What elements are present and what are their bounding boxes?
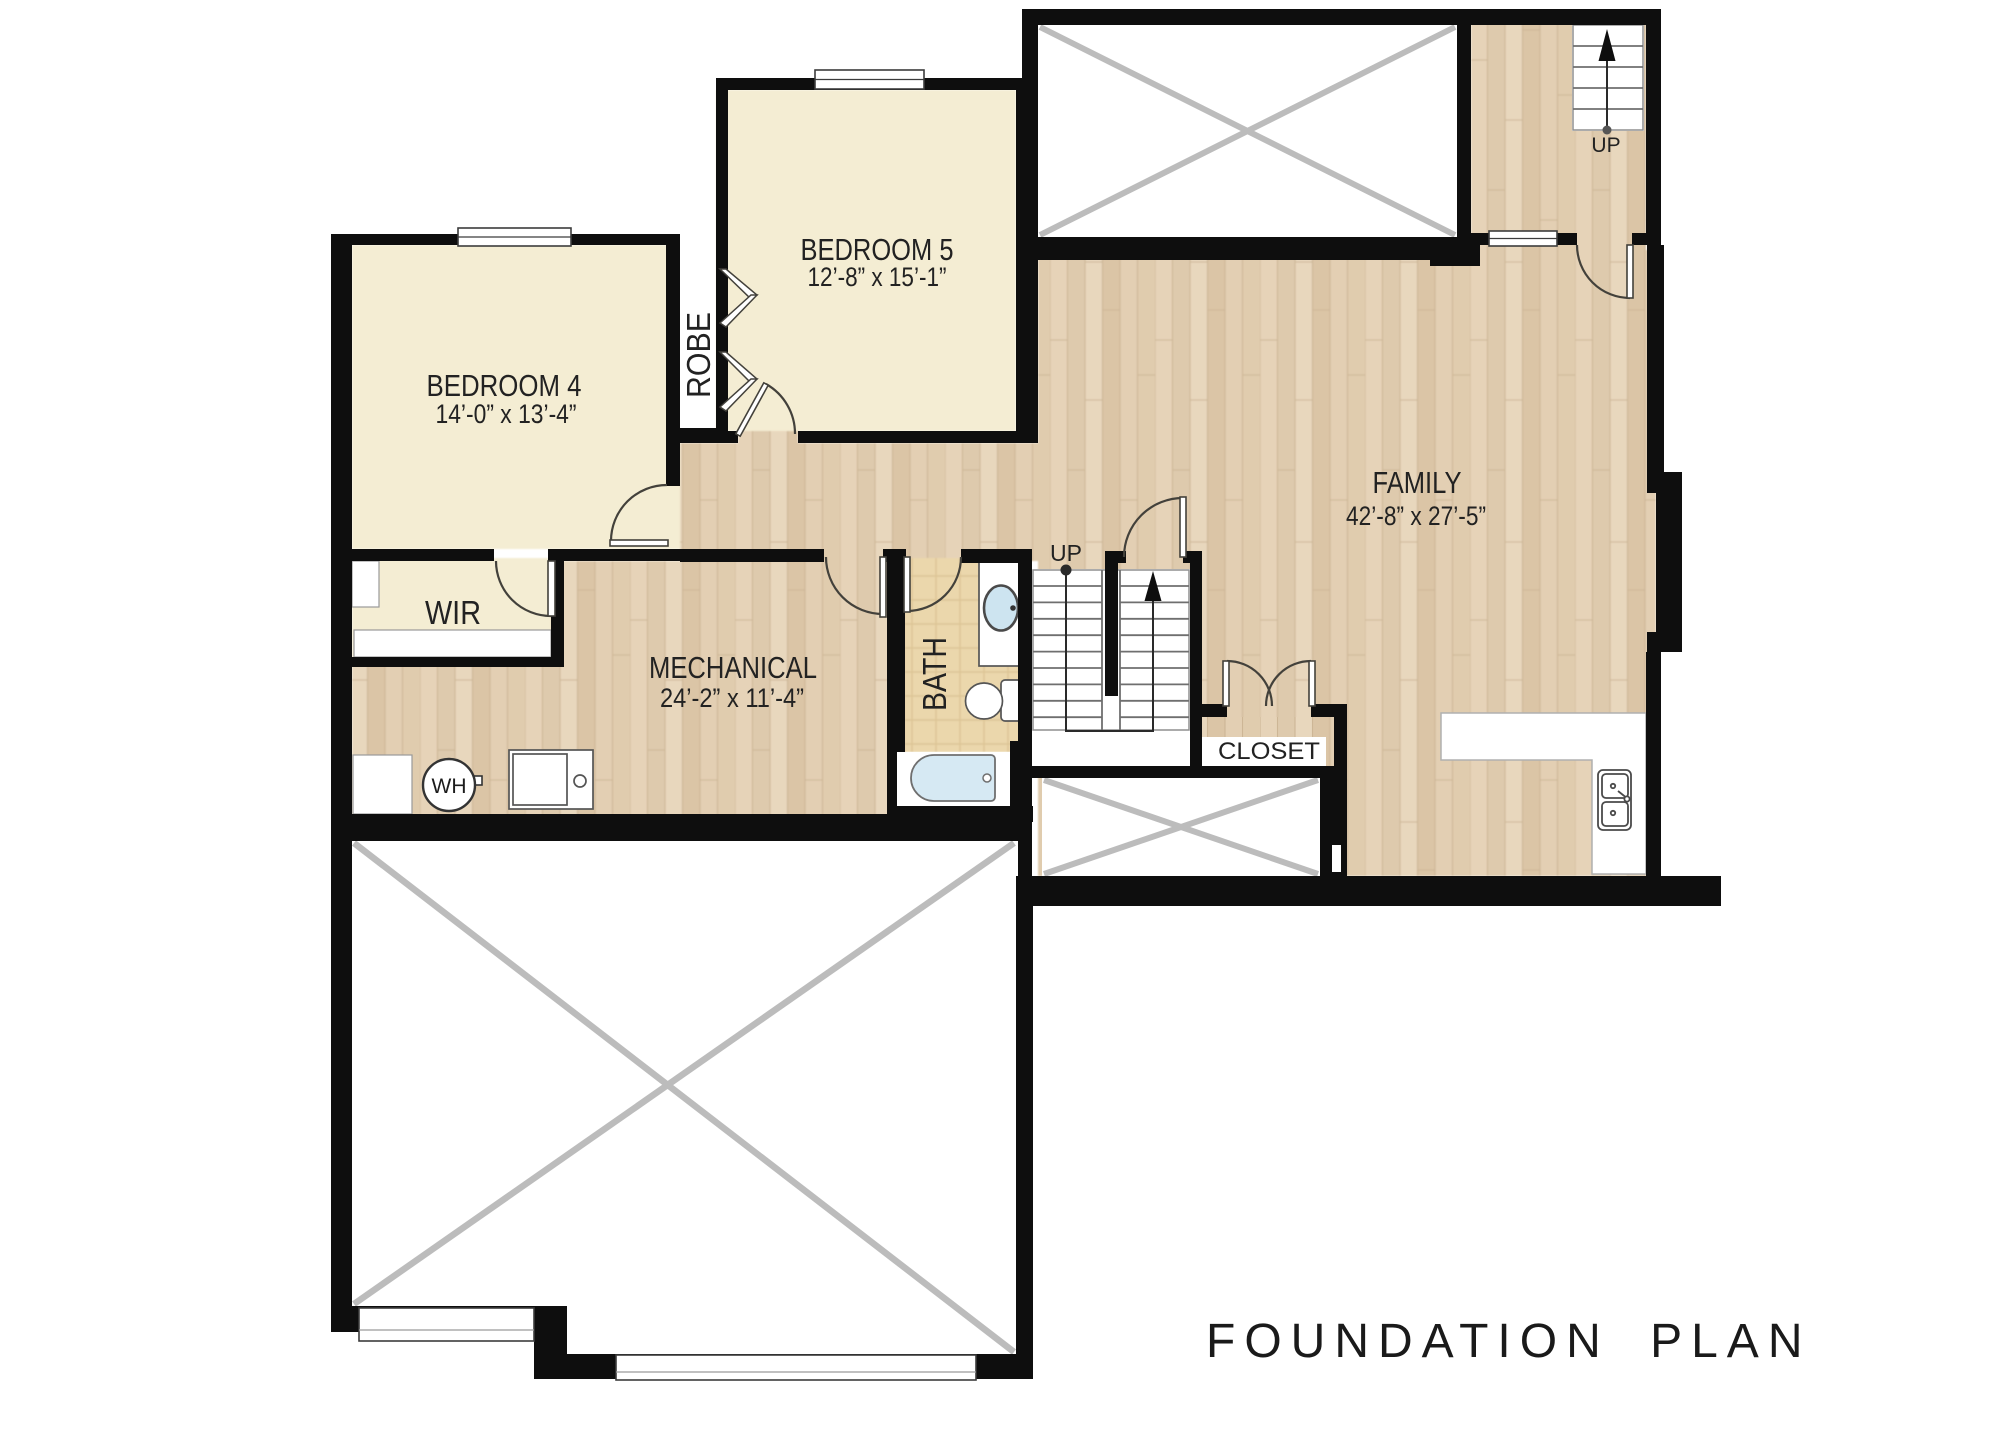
- svg-text:FAMILY: FAMILY: [1373, 465, 1462, 500]
- svg-text:24’-2” x 11’-4”: 24’-2” x 11’-4”: [660, 683, 804, 713]
- svg-text:UP: UP: [1050, 540, 1082, 566]
- svg-text:FOUNDATION PLAN: FOUNDATION PLAN: [1206, 1315, 1811, 1368]
- svg-text:CLOSET: CLOSET: [1218, 738, 1320, 765]
- svg-text:WH: WH: [432, 775, 467, 798]
- svg-text:WIR: WIR: [425, 594, 481, 631]
- svg-text:ROBE: ROBE: [680, 312, 717, 398]
- svg-text:UP: UP: [1591, 134, 1620, 157]
- svg-text:12’-8” x 15’-1”: 12’-8” x 15’-1”: [808, 262, 947, 292]
- svg-text:BEDROOM 4: BEDROOM 4: [427, 368, 582, 403]
- svg-text:BATH: BATH: [916, 637, 953, 711]
- svg-text:MECHANICAL: MECHANICAL: [649, 650, 817, 685]
- svg-text:42’-8” x 27’-5”: 42’-8” x 27’-5”: [1346, 501, 1486, 531]
- svg-text:14’-0” x 13’-4”: 14’-0” x 13’-4”: [436, 399, 577, 429]
